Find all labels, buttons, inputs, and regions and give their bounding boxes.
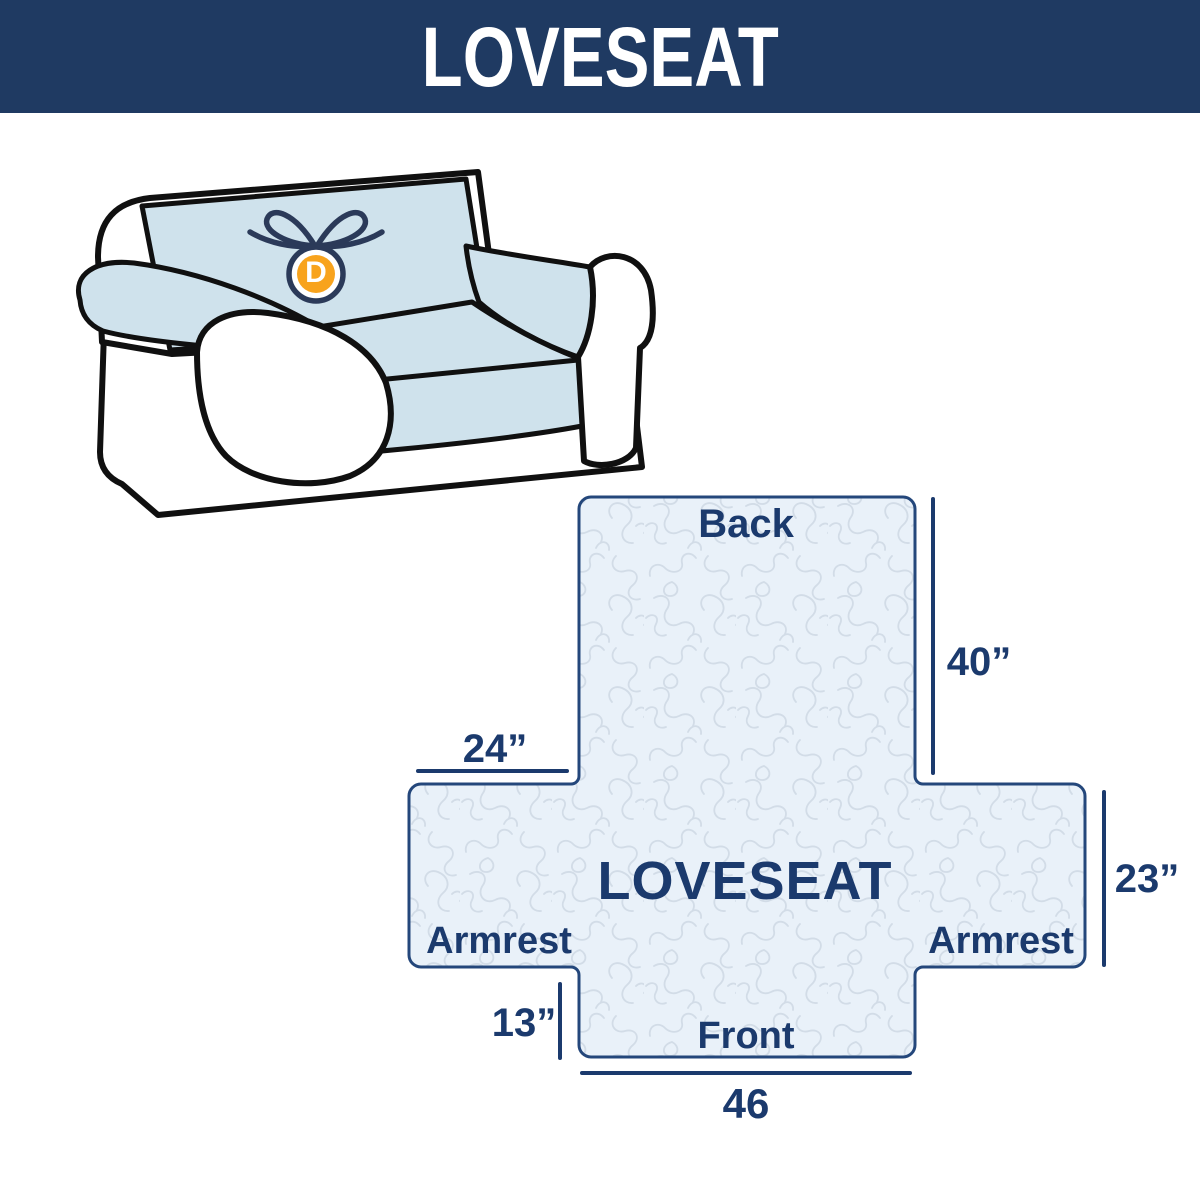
logo-letter: D xyxy=(305,258,327,288)
dim-back-height: 40” xyxy=(947,642,1012,682)
label-loveseat: LOVESEAT xyxy=(597,854,892,908)
cover-diagram-shape xyxy=(409,497,1085,1057)
dim-line-front-width xyxy=(580,1071,912,1075)
page: LOVESEAT xyxy=(0,0,1200,1200)
label-back: Back xyxy=(698,504,794,544)
dim-line-armrest-side-height xyxy=(1102,790,1106,967)
dim-line-front-skirt-height xyxy=(558,982,562,1060)
dim-front-skirt-height: 13” xyxy=(492,1003,557,1043)
dim-armrest-top-width: 24” xyxy=(463,729,528,769)
dim-line-back-height xyxy=(931,497,935,775)
label-armrest-left: Armrest xyxy=(426,922,572,960)
dim-front-width: 46 xyxy=(723,1083,770,1125)
artwork-canvas xyxy=(0,0,1200,1200)
label-front: Front xyxy=(697,1017,794,1055)
dim-armrest-side-height: 23” xyxy=(1115,859,1180,899)
label-armrest-right: Armrest xyxy=(928,922,1074,960)
